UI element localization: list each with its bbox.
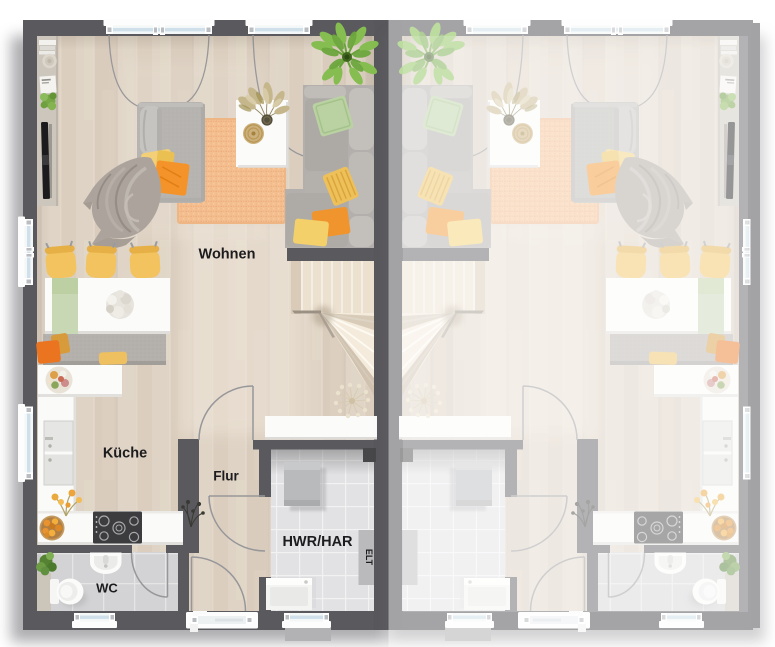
- svg-text:ELT: ELT: [364, 549, 374, 566]
- svg-text:HWR/HAR: HWR/HAR: [282, 534, 353, 550]
- svg-text:WC: WC: [96, 581, 118, 596]
- svg-text:Flur: Flur: [213, 469, 239, 484]
- svg-text:Küche: Küche: [103, 446, 147, 462]
- svg-text:Wohnen: Wohnen: [199, 247, 256, 263]
